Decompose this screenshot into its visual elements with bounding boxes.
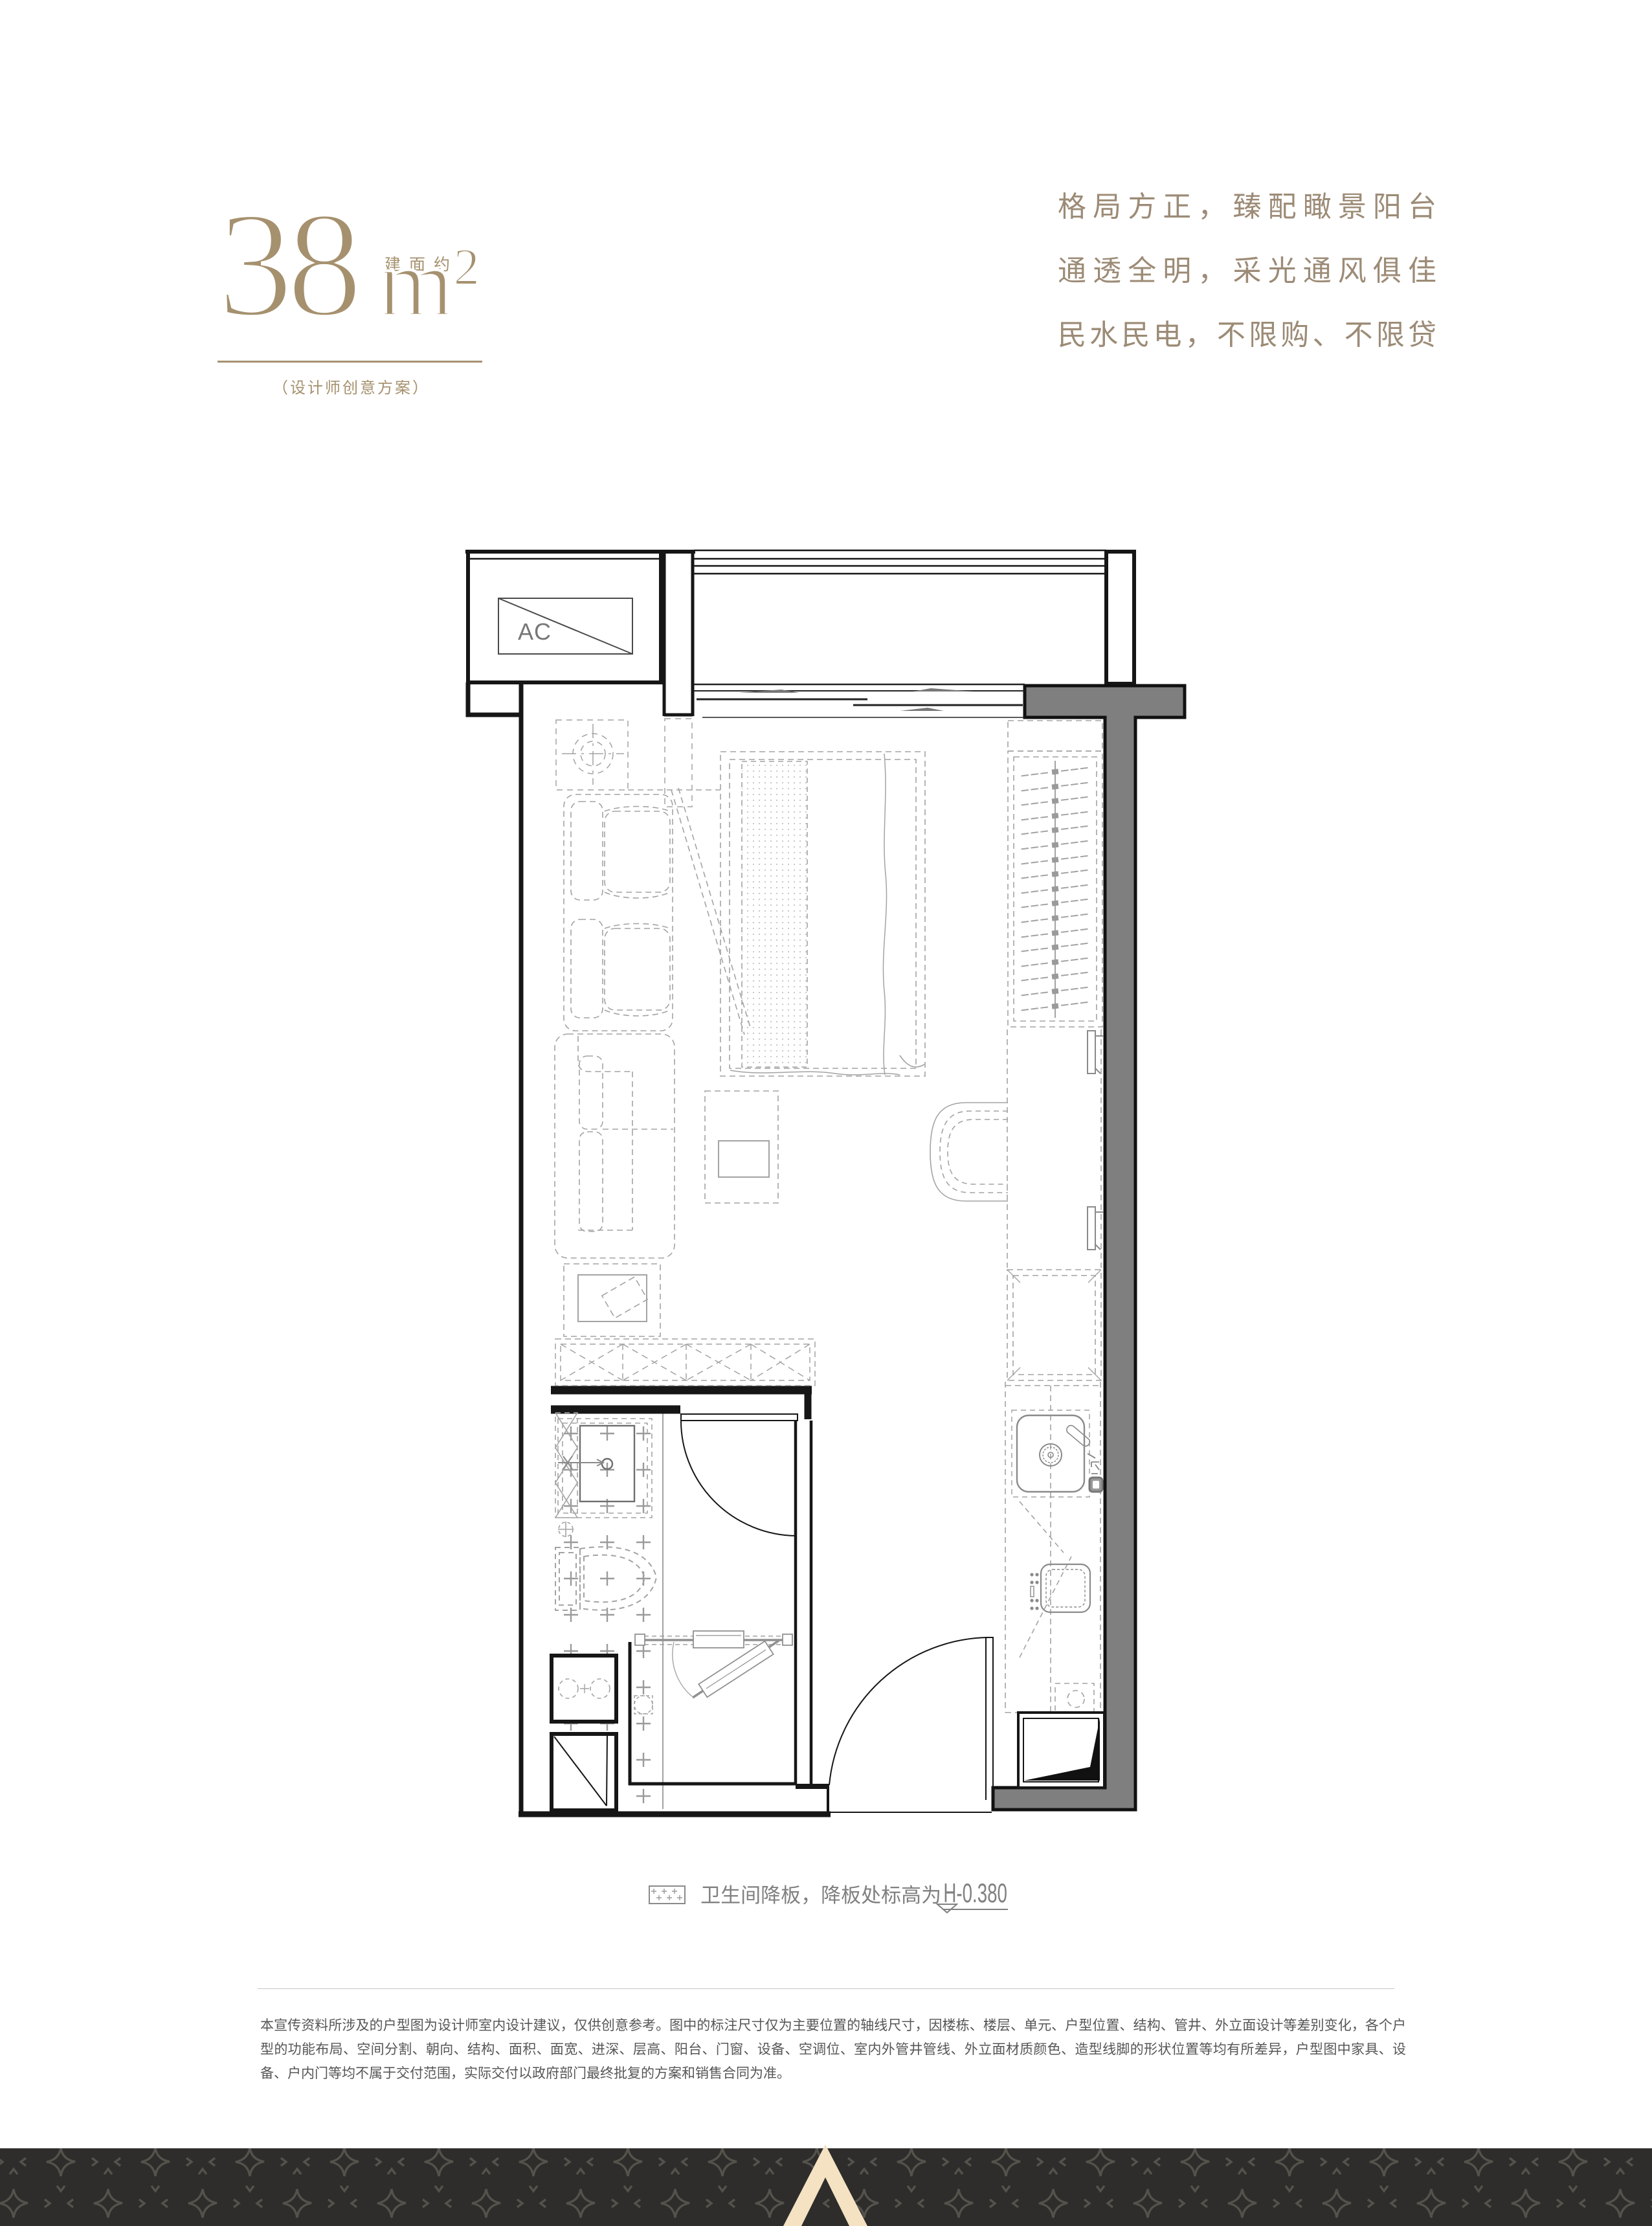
- svg-text:AC: AC: [518, 618, 552, 645]
